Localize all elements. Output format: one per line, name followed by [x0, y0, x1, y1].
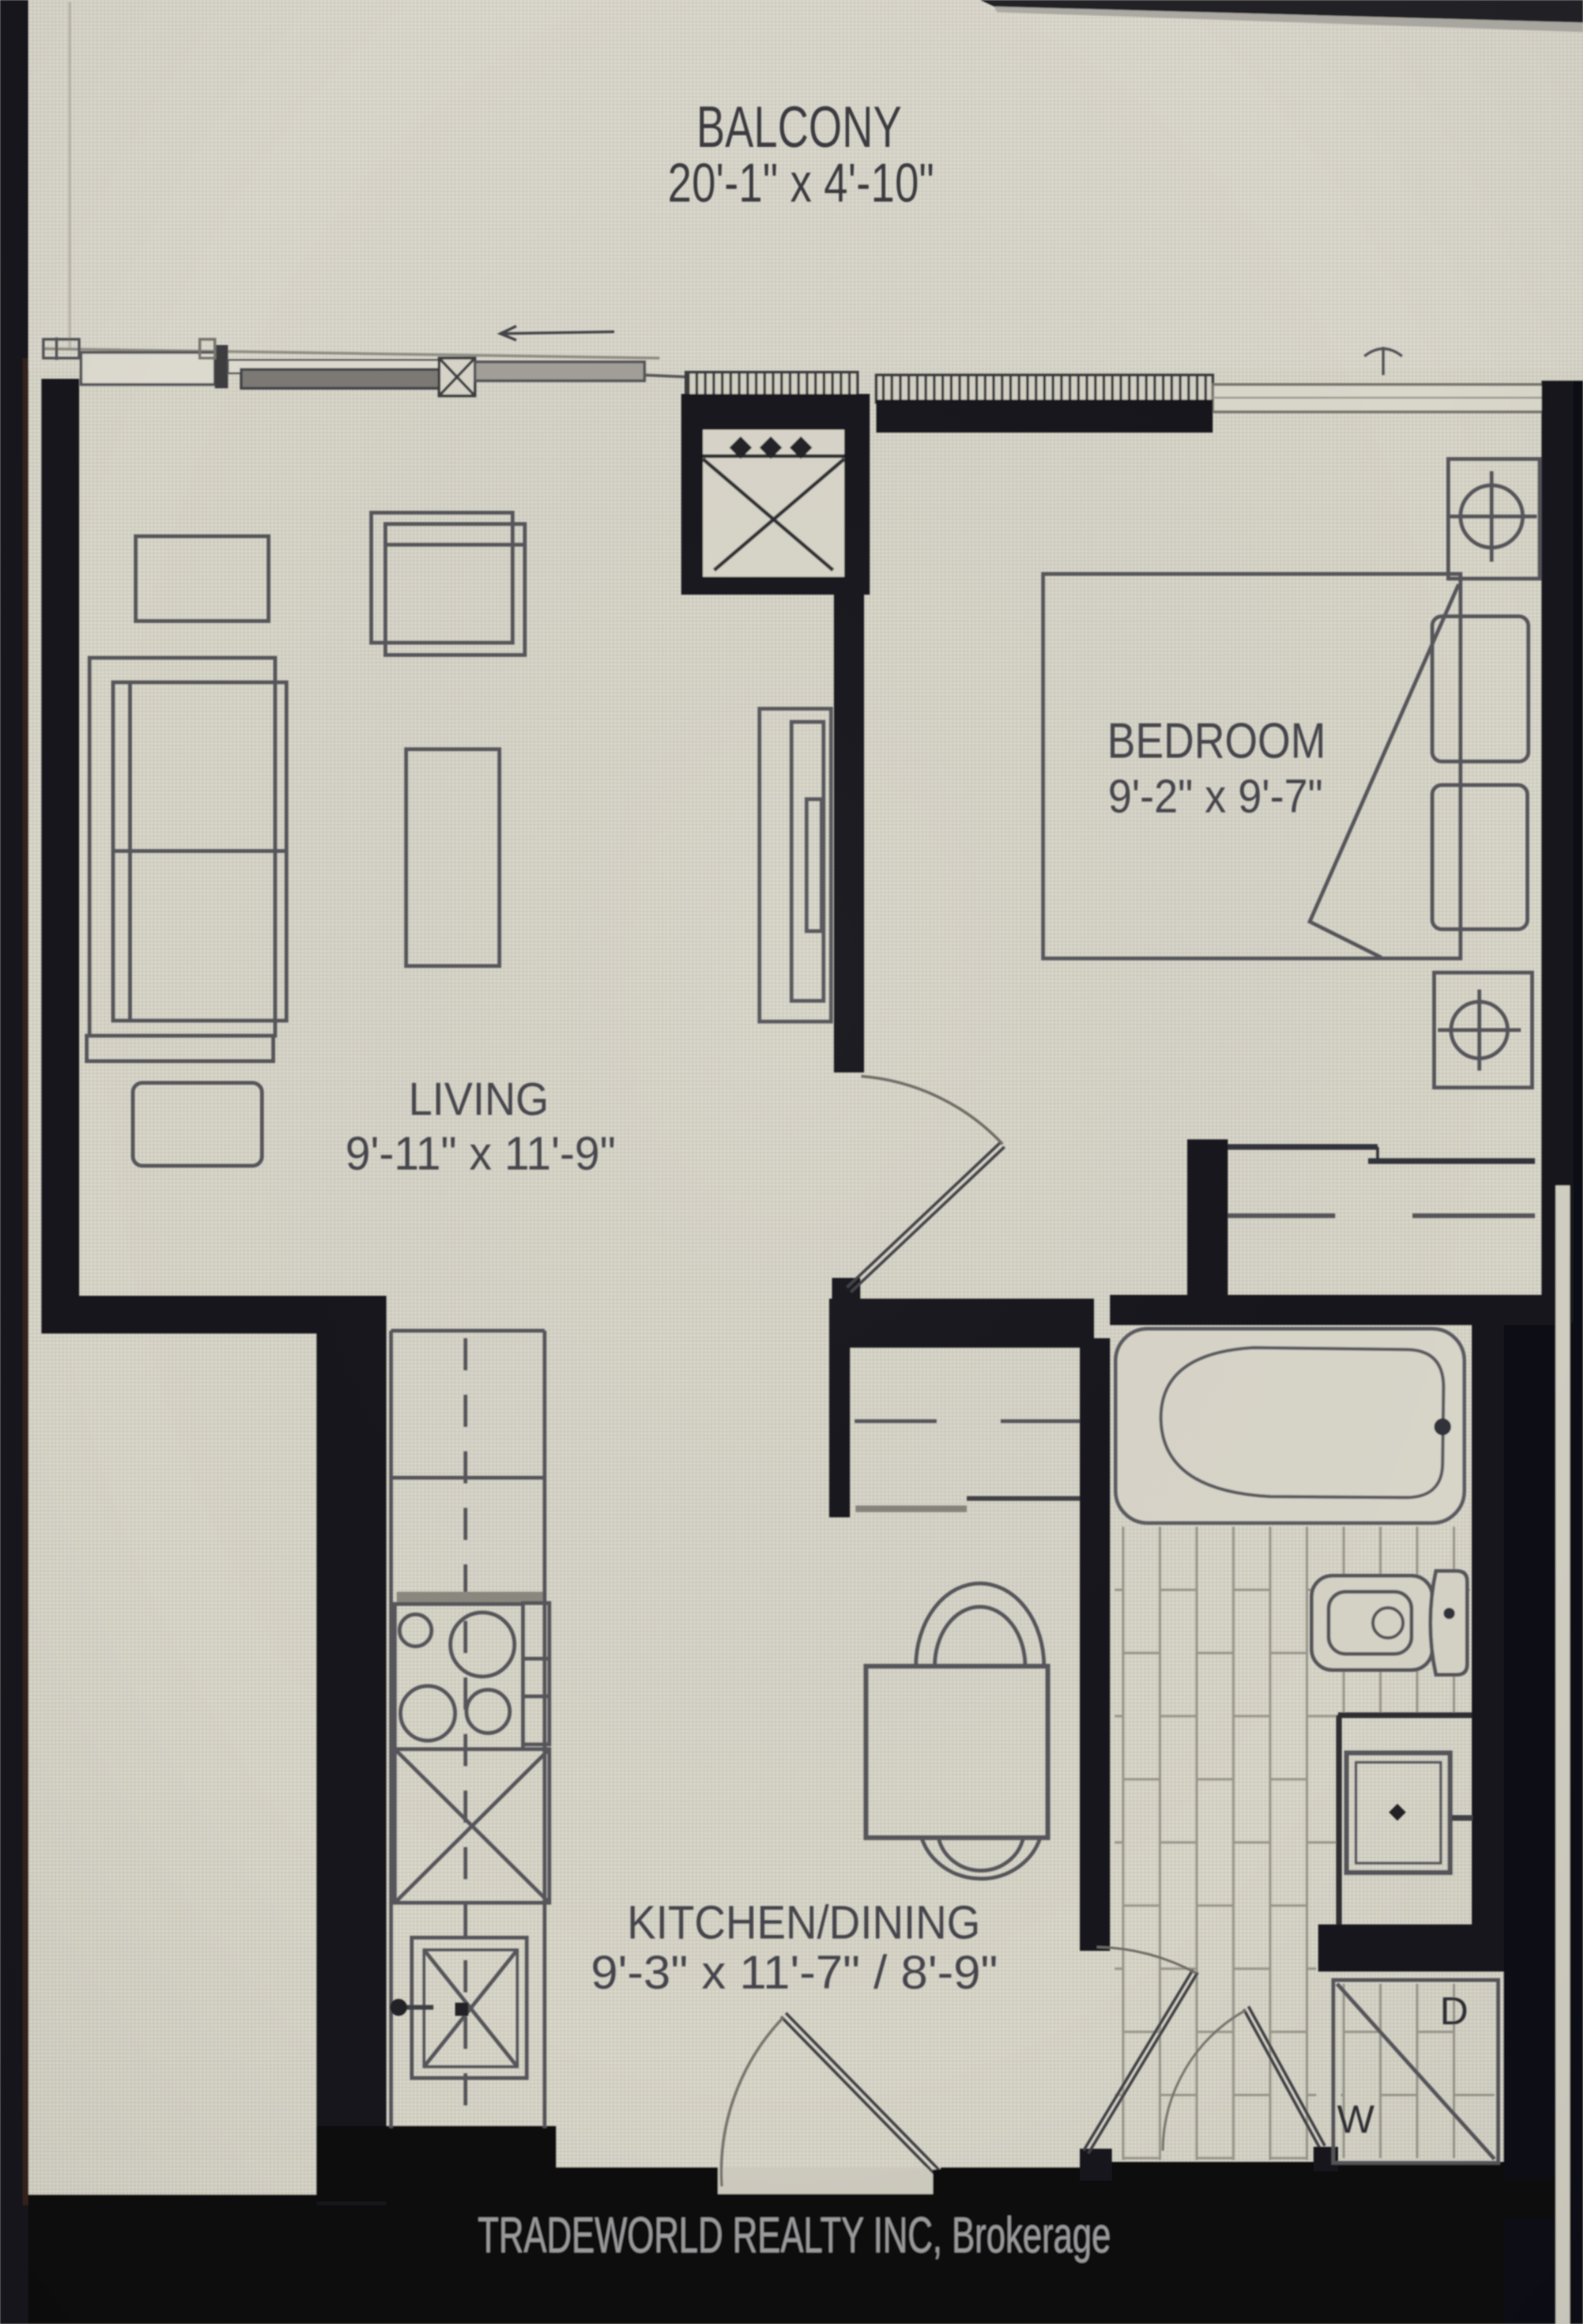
svg-text:20'-1" x 4'-10": 20'-1" x 4'-10": [668, 153, 935, 214]
svg-text:D: D: [1440, 1988, 1468, 2033]
svg-text:BEDROOM: BEDROOM: [1107, 713, 1326, 769]
svg-text:W: W: [1337, 2097, 1375, 2141]
svg-text:BALCONY: BALCONY: [696, 95, 902, 160]
svg-text:TRADEWORLD REALTY INC, Brokera: TRADEWORLD REALTY INC, Brokerage: [478, 2207, 1111, 2264]
svg-text:LIVING: LIVING: [409, 1074, 549, 1125]
svg-text:9'-3" x 11'-7" / 8'-9": 9'-3" x 11'-7" / 8'-9": [591, 1946, 998, 1999]
svg-text:KITCHEN/DINING: KITCHEN/DINING: [628, 1896, 981, 1949]
svg-text:9'-11" x 11'-9": 9'-11" x 11'-9": [346, 1127, 616, 1180]
svg-text:9'-2" x 9'-7": 9'-2" x 9'-7": [1108, 770, 1323, 823]
